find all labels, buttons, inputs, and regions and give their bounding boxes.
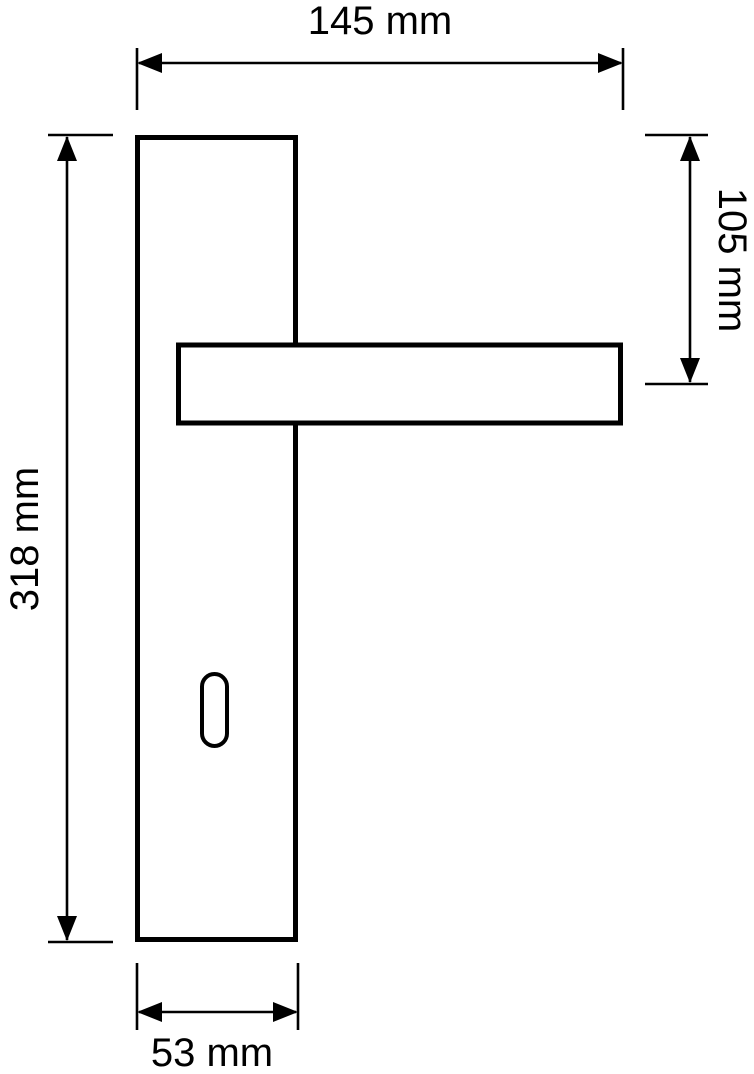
dim-plate-height: 318 mm: [3, 135, 113, 942]
backplate-outline: [138, 138, 296, 940]
arrowhead-right: [273, 1002, 298, 1022]
dim-label-overall-width: 145 mm: [308, 0, 453, 43]
arrowhead-right: [598, 53, 623, 73]
dim-handle-offset: 105 mm: [645, 135, 754, 384]
handle-lever-outline: [179, 345, 621, 423]
drawing-canvas: 145 mm 105 mm 318 mm 53 mm: [0, 0, 754, 1074]
dim-overall-width: 145 mm: [137, 0, 623, 110]
product-outline: [138, 138, 621, 940]
dim-label-plate-height: 318 mm: [3, 467, 47, 612]
dim-label-plate-width: 53 mm: [151, 1031, 273, 1074]
arrowhead-left: [137, 1002, 162, 1022]
arrowhead-up: [680, 136, 700, 161]
keyhole-cutout: [202, 674, 227, 746]
arrowhead-down: [57, 916, 77, 941]
dim-label-handle-offset: 105 mm: [710, 188, 754, 333]
arrowhead-up: [57, 136, 77, 161]
arrowhead-down: [680, 358, 700, 383]
arrowhead-left: [137, 53, 162, 73]
dim-plate-width: 53 mm: [137, 963, 298, 1074]
dimension-drawing: 145 mm 105 mm 318 mm 53 mm: [0, 0, 754, 1074]
